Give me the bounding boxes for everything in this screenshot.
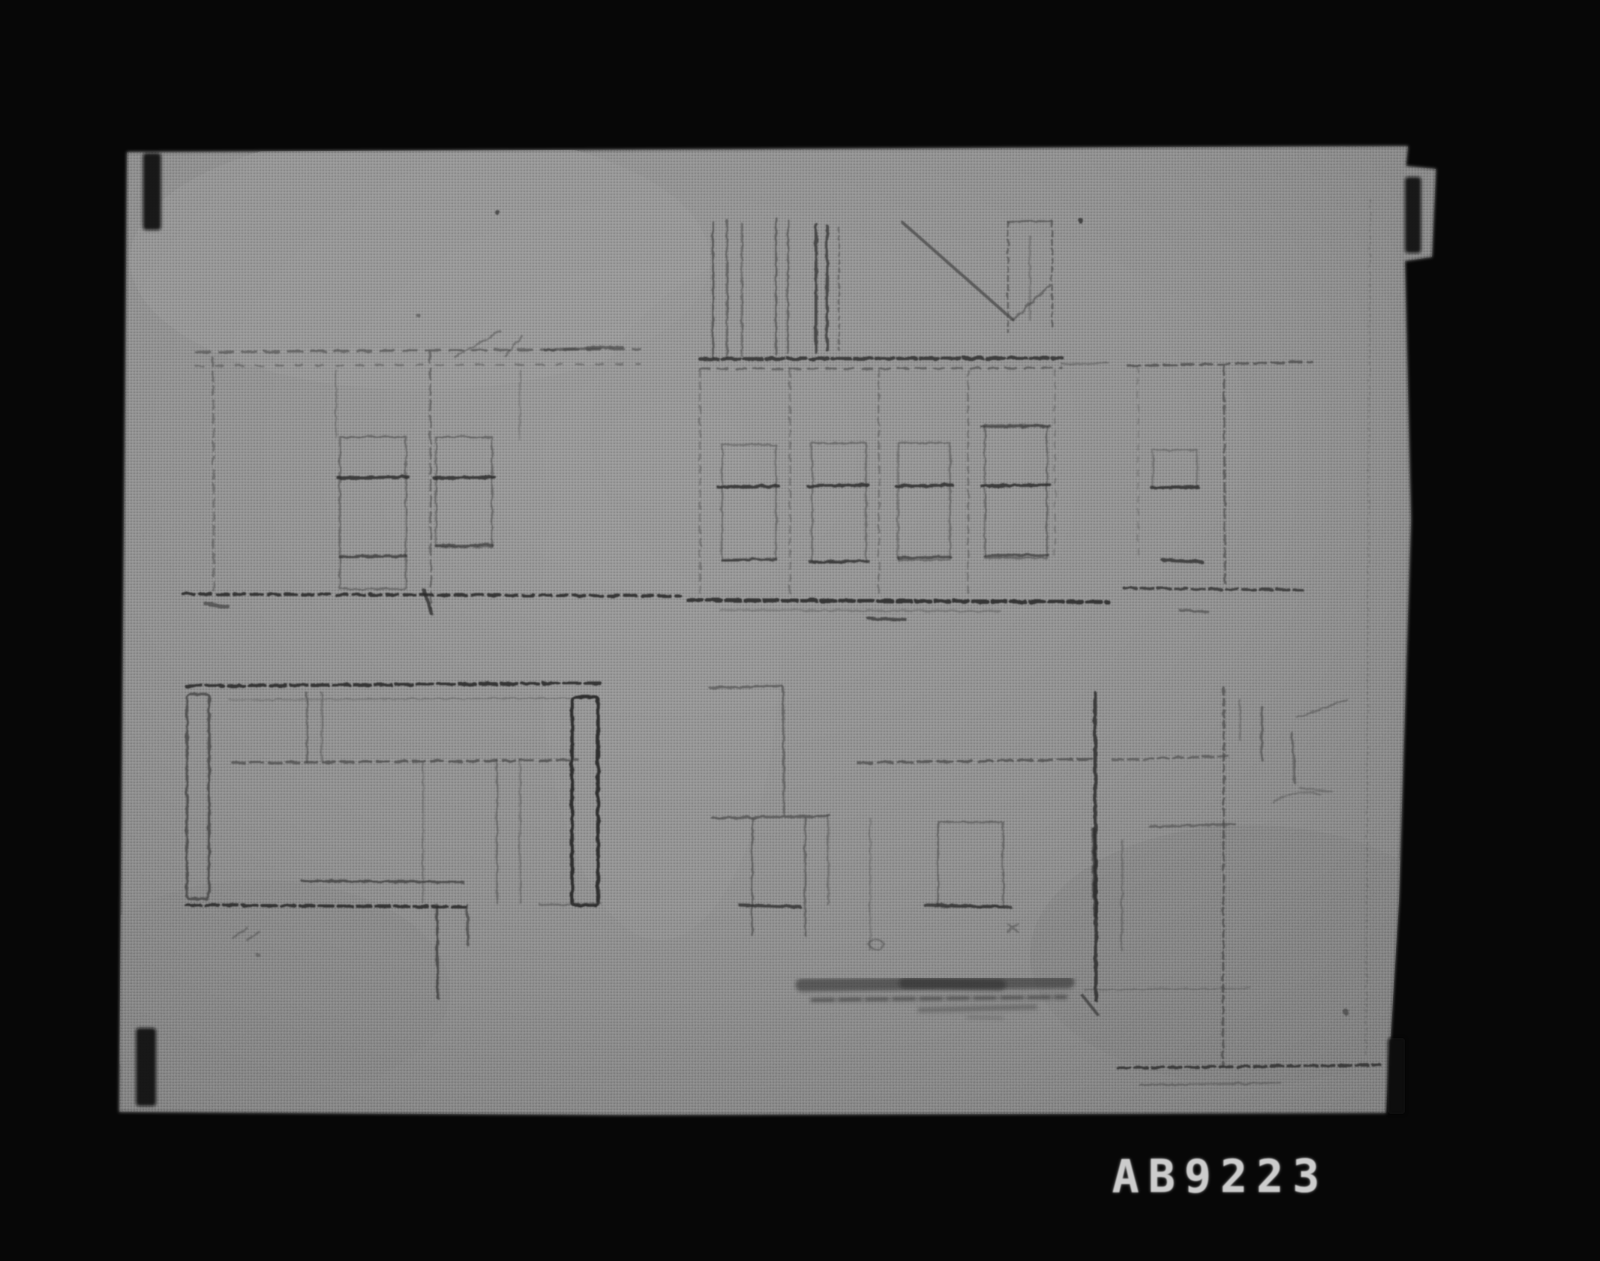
photo-id-label: AB9223 [1112,1150,1329,1203]
mounting-clip-top-left [143,153,161,230]
archival-photo-screen: AB9223 [0,0,1600,1261]
paper-sheet [70,130,1470,1140]
mounting-clip-bottom-right [1388,1038,1405,1114]
mounting-clip-top-right [1405,177,1421,253]
drawing-photo [0,0,1600,1261]
mounting-clip-bottom-left [136,1028,156,1106]
